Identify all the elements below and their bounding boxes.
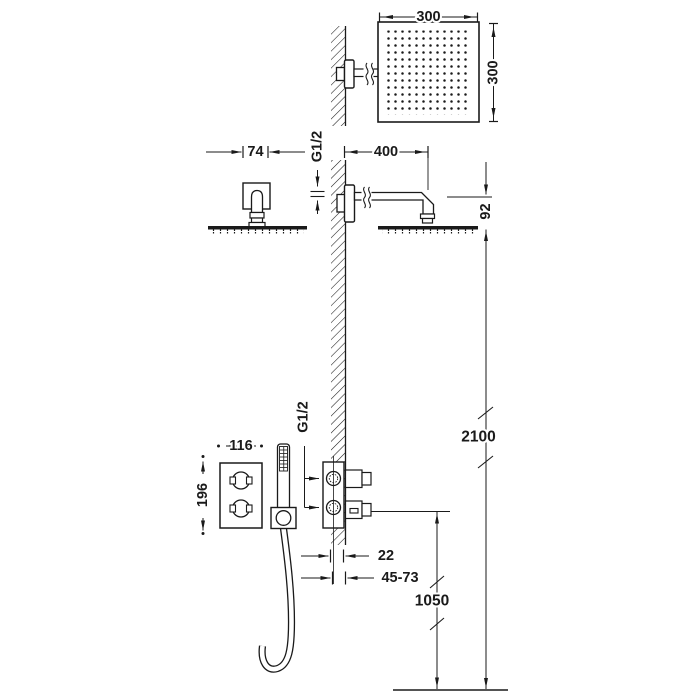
dim-depth-min: 22 [301, 548, 394, 564]
dim-arm-length: 400 [345, 144, 429, 190]
dim-label-head-height-from-floor: 2100 [461, 429, 495, 446]
nozzle-ticks [382, 230, 475, 234]
dim-valve-height: 196 [195, 455, 211, 535]
shower-head-side-bar [208, 226, 307, 230]
ceiling-mount-view [208, 183, 307, 234]
dim-valve-width: 116 [217, 438, 263, 454]
nozzle-ticks [212, 230, 304, 234]
dim-label-depth-range: 45-73 [381, 570, 418, 586]
technical-drawing-page: 300 300 74 G1/2 [0, 0, 700, 700]
pipe-break-symbol [364, 187, 366, 208]
thread-callout-valve: G1/2 [296, 401, 320, 507]
thread-callout-arm: G1/2 [310, 131, 326, 214]
valve-side-view [323, 456, 371, 584]
dim-label-valve-height: 196 [195, 483, 211, 507]
dim-depth-range: 45-73 [301, 570, 419, 586]
ceiling-connector [252, 191, 263, 213]
hand-shower [262, 444, 296, 669]
thread-label-valve: G1/2 [296, 401, 312, 432]
dim-label-valve-width: 116 [229, 438, 252, 454]
rain-shower-head-face [378, 22, 479, 122]
dim-label-head-width: 300 [416, 9, 440, 25]
dim-head-height-from-floor: 2100 [461, 230, 495, 690]
dim-label-outlet-height: 1050 [415, 593, 449, 610]
pipe-break-symbol [366, 63, 368, 85]
dim-label-flange-width: 74 [247, 144, 263, 160]
thread-label-arm: G1/2 [310, 131, 326, 162]
dim-head-height: 300 [486, 24, 502, 122]
built-in-body-top [346, 470, 363, 488]
valve-front-view [220, 463, 262, 528]
dim-label-head-height: 300 [486, 60, 502, 84]
dim-label-arm-drop: 92 [478, 203, 494, 219]
dim-outlet-height: 1050 [371, 512, 450, 690]
dim-label-arm-length: 400 [374, 144, 398, 160]
shower-head-side-bar [378, 226, 478, 230]
shower-installation-diagram: 300 300 74 G1/2 [0, 0, 700, 700]
nozzle-grid [387, 31, 471, 115]
bracket-cup [276, 511, 291, 526]
shower-arm-side-view [337, 185, 478, 234]
arm-wall-flange [345, 185, 355, 222]
dim-flange-width: 74 [206, 144, 305, 160]
dim-arm-drop: 92 [447, 162, 494, 220]
dim-label-depth-min: 22 [378, 548, 394, 564]
